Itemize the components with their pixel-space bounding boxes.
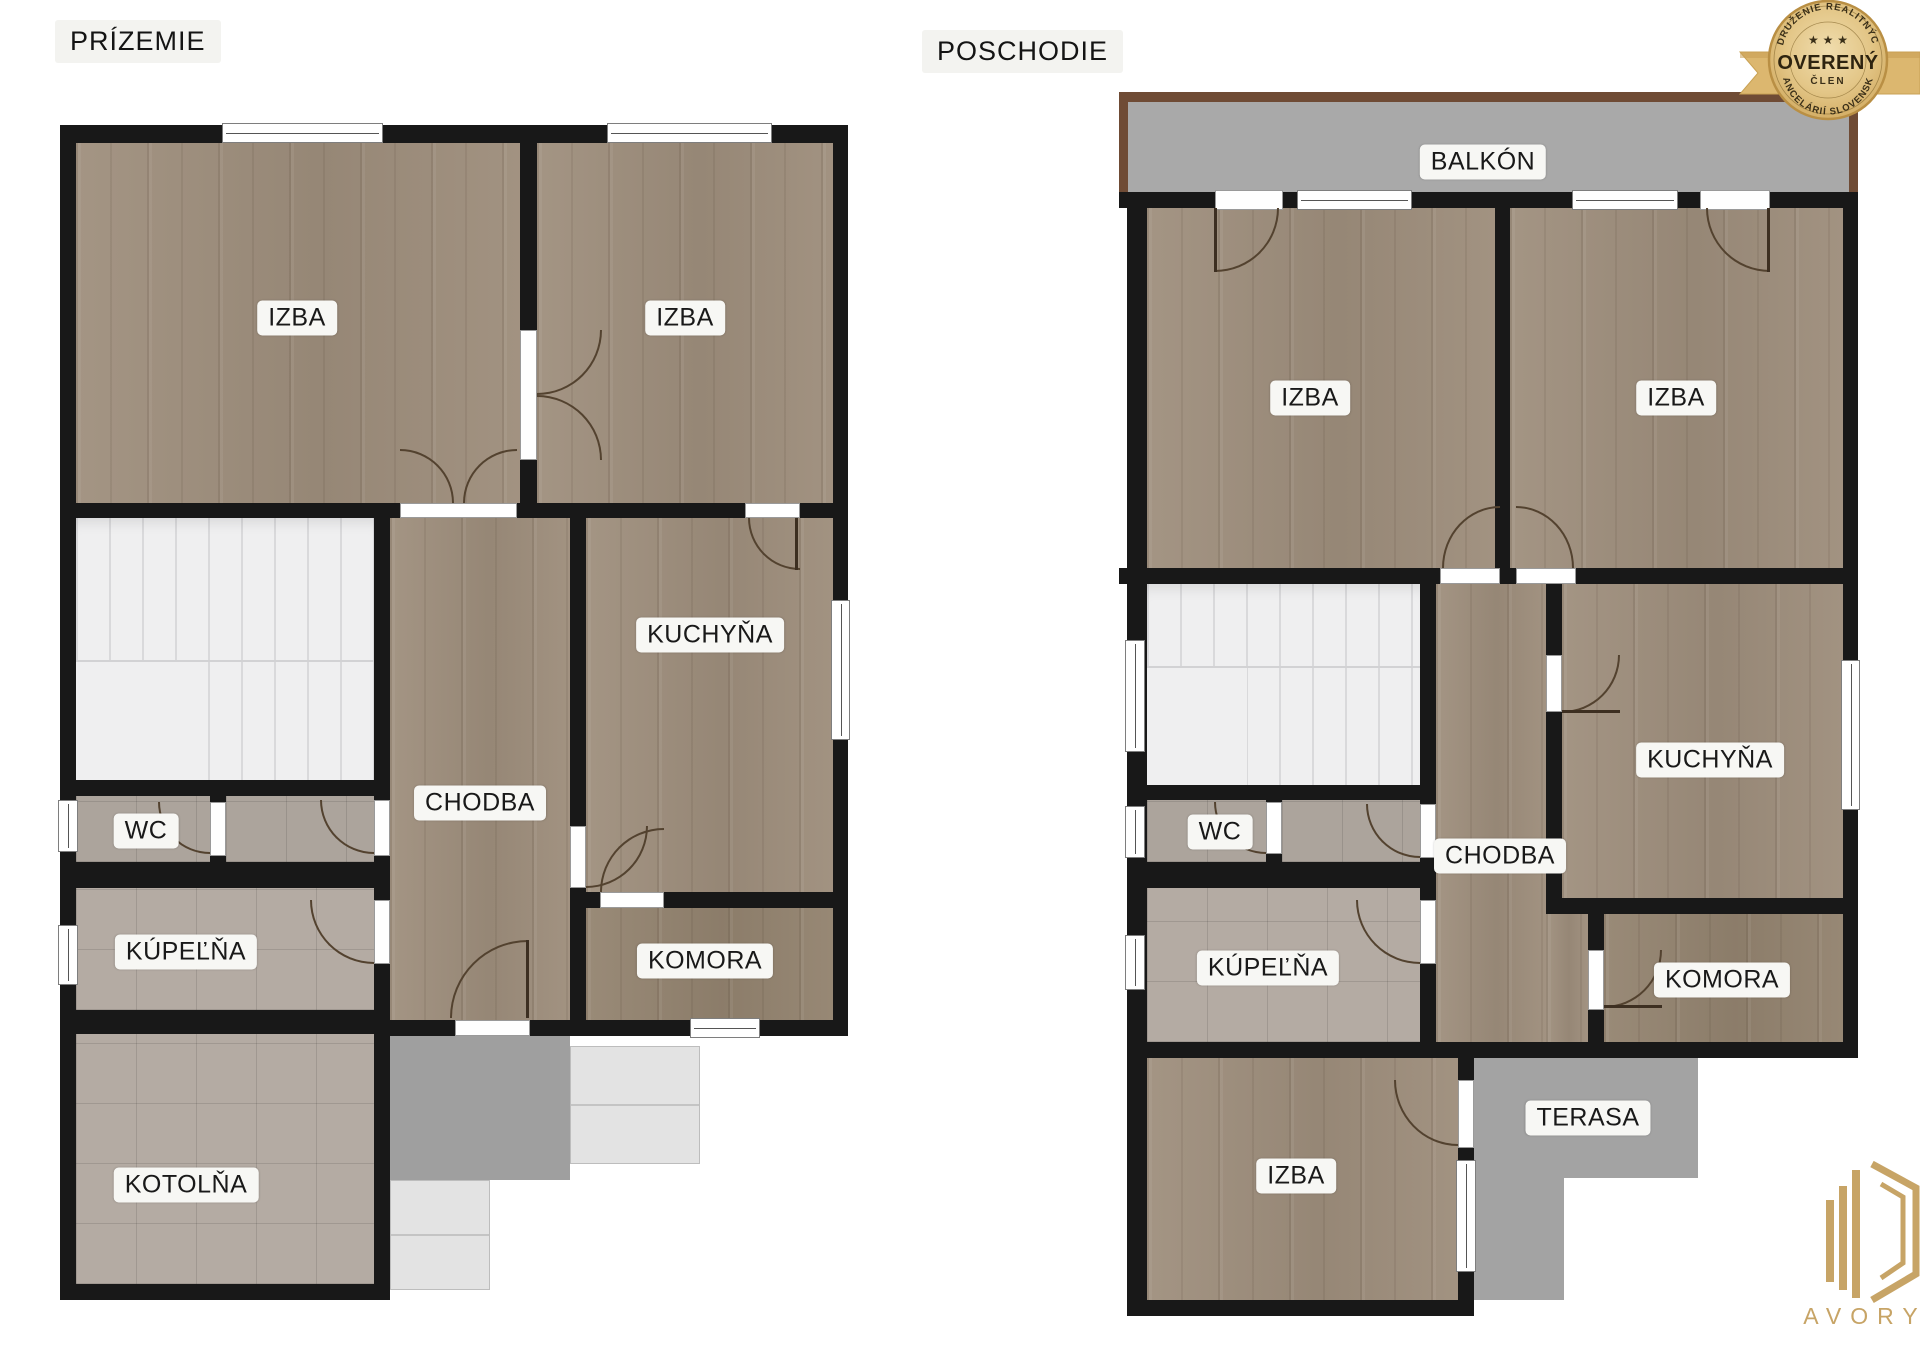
window [1572,190,1678,210]
window [1125,806,1145,858]
room-label-izba-right: IZBA [1636,381,1716,416]
avory-logo: AVORY ® [1768,1158,1920,1333]
room-label-kupelna: KÚPEĽŇA [1197,951,1339,986]
staircase-landing [1147,668,1247,785]
wall [1127,862,1436,888]
window [1125,935,1145,990]
wall [1127,785,1436,800]
room-label-izba-bottom: IZBA [1256,1159,1336,1194]
door-leaf [1767,208,1770,272]
door-opening [1266,802,1282,854]
door-leaf [1604,1005,1662,1008]
wall [1843,192,1858,1058]
window [1297,190,1412,210]
avory-logo-text: AVORY [1803,1303,1920,1329]
window [1456,1160,1476,1272]
plan-poschodie: POSCHODIE [0,0,1020,1358]
room-label-komora: KOMORA [1654,963,1790,998]
certification-badge: ZDRUŽENIE REALITNÝCH KANCELÁRIÍ SLOVENSK… [1736,0,1920,126]
wall [1546,898,1858,914]
wall [1127,192,1147,1316]
door-opening [1420,900,1436,964]
room-label-izba-left: IZBA [1270,381,1350,416]
avory-logo-panel [1872,1164,1916,1300]
floor-kuchyna [1562,584,1843,898]
door-opening [1588,950,1604,1010]
door-opening [1440,568,1500,584]
wall [1127,1042,1858,1058]
room-label-kuchyna: KUCHYŇA [1636,743,1784,778]
balcony-door-opening [1215,190,1283,210]
door-opening [1546,655,1562,712]
room-label-wc: WC [1188,815,1253,850]
terrace-area-lower [1474,1178,1564,1300]
door-opening [1458,1080,1474,1148]
floorplan-page: PRÍZEMIE [0,0,1920,1358]
window [1841,660,1860,810]
room-label-terasa: TERASA [1525,1101,1650,1136]
floor-chodba [1436,584,1546,1042]
window [1125,640,1145,752]
balcony-door-opening [1700,190,1770,210]
badge-title: OVERENÝ [1777,50,1878,74]
floor-chodba-lower [1546,914,1588,1042]
wall [1127,1300,1474,1316]
badge-subtitle: ČLEN [1810,74,1845,87]
room-label-chodba: CHODBA [1434,839,1566,874]
door-leaf [1562,710,1620,713]
avory-logo-glyph [1826,1170,1860,1298]
door-leaf [1214,208,1217,272]
plan-title-poschodie: POSCHODIE [922,30,1123,73]
badge-stars: ★ ★ ★ [1808,33,1848,47]
room-label-balkon: BALKÓN [1420,145,1546,180]
staircase-midline [1147,666,1420,668]
door-opening [1516,568,1576,584]
